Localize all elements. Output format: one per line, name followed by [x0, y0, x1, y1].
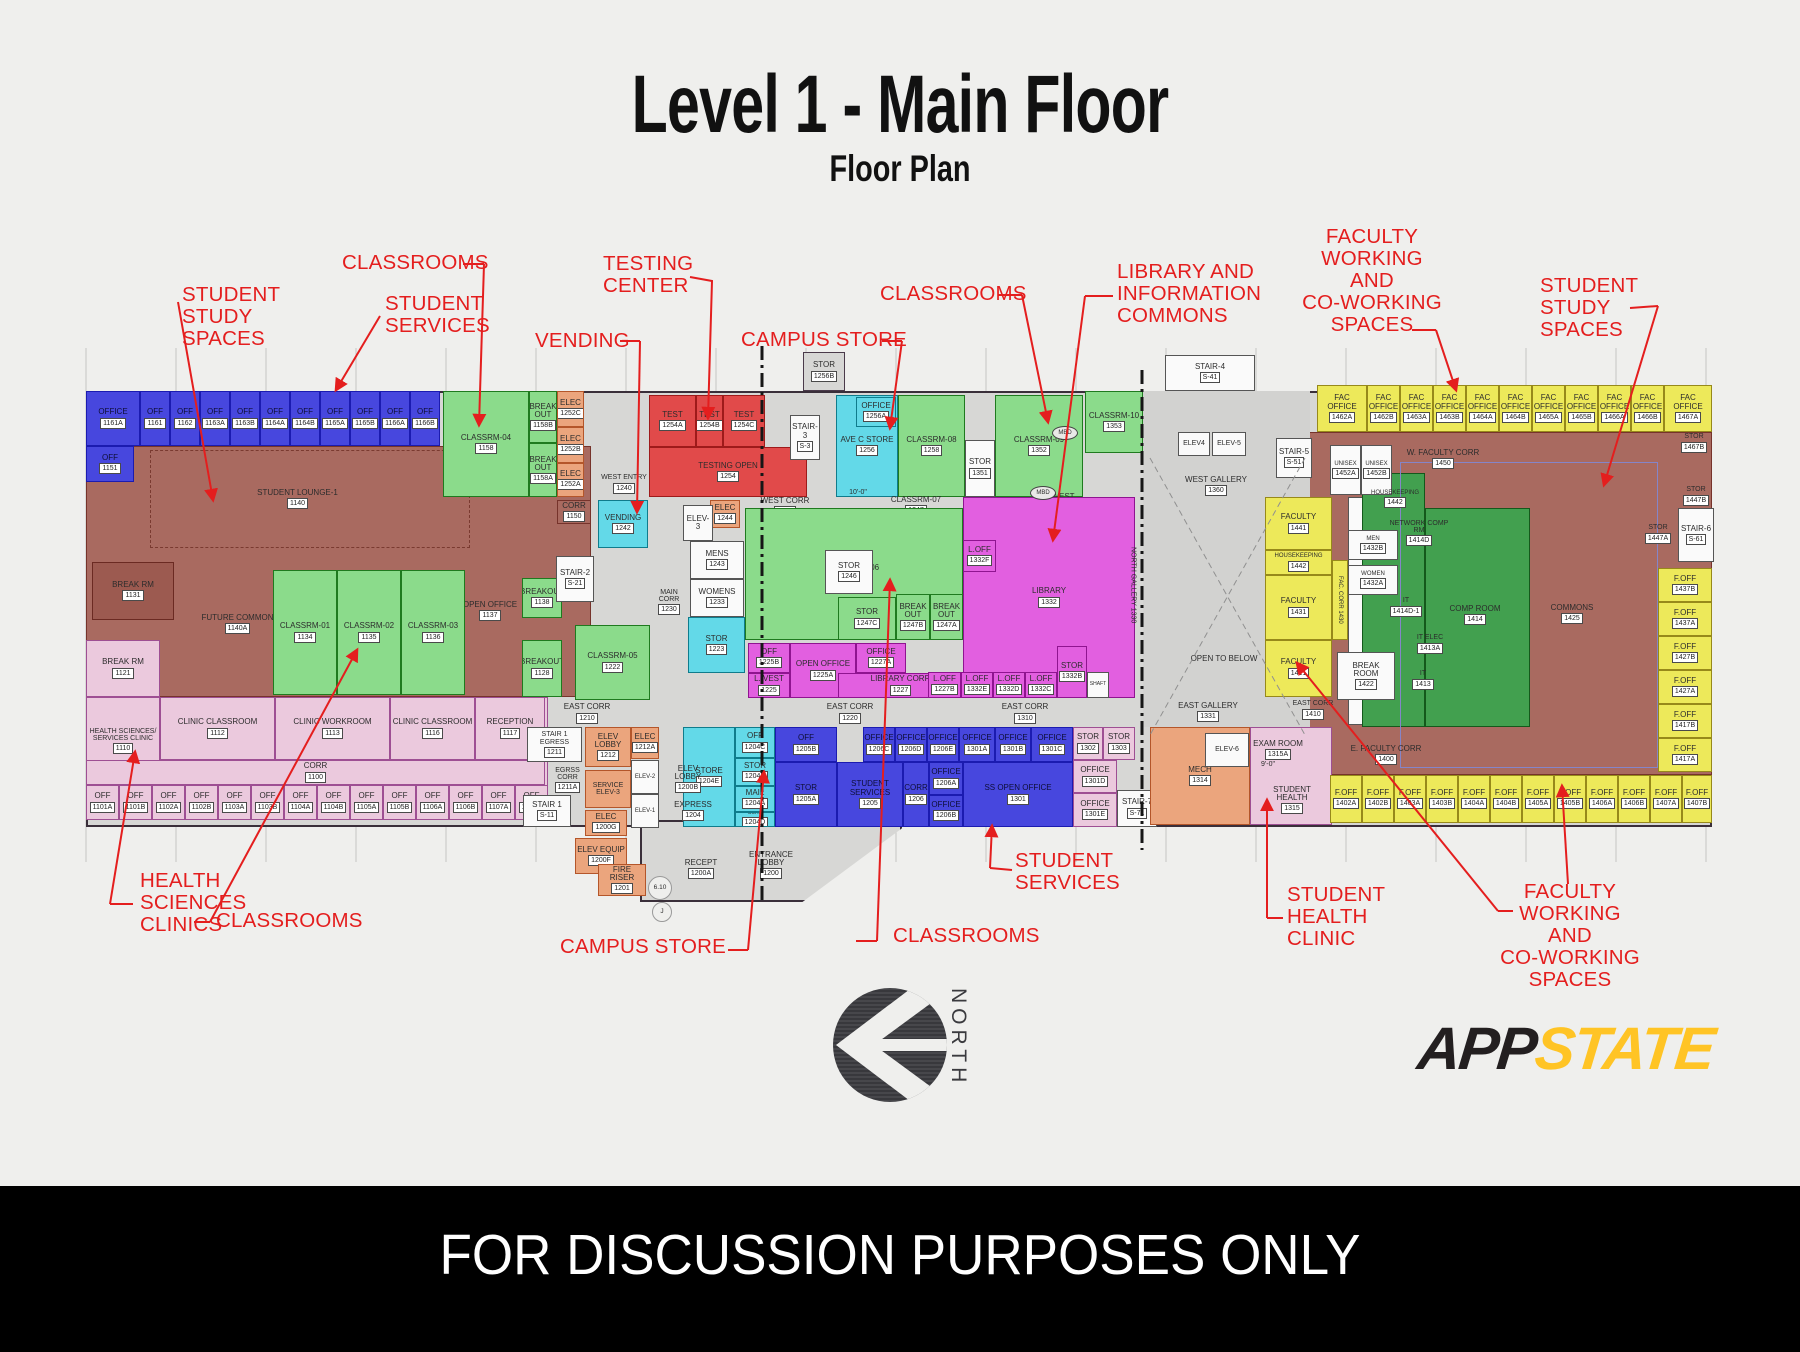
annotation-line: HEALTH — [1287, 906, 1385, 928]
annotation-line: STUDENT — [1540, 275, 1638, 297]
annotation-line: WORKING — [1302, 248, 1442, 270]
annotation-line: FACULTY — [1500, 881, 1640, 903]
annotation-line: SPACES — [182, 328, 280, 350]
annotation-line: SPACES — [1500, 969, 1640, 991]
floor-plan-page: Level 1 - Main Floor Floor Plan OFFICE11… — [0, 0, 1800, 1352]
annotation-line: SPACES — [1540, 319, 1638, 341]
annotation-line: CAMPUS STORE — [741, 329, 907, 351]
annotation-line: HEALTH — [140, 870, 246, 892]
annotation-line: STUDENT — [385, 293, 490, 315]
annotation-line: LIBRARY AND — [1117, 261, 1261, 283]
annotation-student-services: STUDENTSERVICES — [385, 293, 490, 337]
annotation-line: SPACES — [1302, 314, 1442, 336]
annotation-line: AND — [1302, 270, 1442, 292]
annotation-classrooms: CLASSROOMS — [342, 252, 489, 274]
annotation-classrooms: CLASSROOMS — [216, 910, 363, 932]
annotation-line: CLASSROOMS — [342, 252, 489, 274]
annotation-line: SERVICES — [385, 315, 490, 337]
annotation-line: CLASSROOMS — [893, 925, 1040, 947]
annotation-line: CLASSROOMS — [880, 283, 1027, 305]
annotation-campusstore: CAMPUS STORE — [741, 329, 907, 351]
annotation-libraryand-information-commons: LIBRARY ANDINFORMATIONCOMMONS — [1117, 261, 1261, 327]
annotation-line: CLINIC — [1287, 928, 1385, 950]
annotation-line: CLASSROOMS — [216, 910, 363, 932]
annotation-faculty-working-and-co-working-spaces: FACULTYWORKINGANDCO-WORKINGSPACES — [1302, 226, 1442, 336]
annotation-student-health-clinic: STUDENTHEALTHCLINIC — [1287, 884, 1385, 950]
annotation-line: CENTER — [603, 275, 693, 297]
annotation-classrooms: CLASSROOMS — [893, 925, 1040, 947]
annotation-line: STUDY — [1540, 297, 1638, 319]
annotation-student-study-spaces: STUDENTSTUDYSPACES — [182, 284, 280, 350]
annotation-line: COMMONS — [1117, 305, 1261, 327]
annotation-line: TESTING — [603, 253, 693, 275]
annotation-campusstore: CAMPUS STORE — [560, 936, 726, 958]
annotation-line: AND — [1500, 925, 1640, 947]
annotation-line: STUDENT — [1287, 884, 1385, 906]
annotation-line: STUDENT — [182, 284, 280, 306]
annotation-testing-center: TESTINGCENTER — [603, 253, 693, 297]
annotation-vending: VENDING — [535, 330, 630, 352]
annotation-student-services: STUDENTSERVICES — [1015, 850, 1120, 894]
annotation-line: SERVICES — [1015, 872, 1120, 894]
annotation-line: WORKING — [1500, 903, 1640, 925]
annotation-line: VENDING — [535, 330, 630, 352]
annotation-line: CAMPUS STORE — [560, 936, 726, 958]
annotation-line: STUDENT — [1015, 850, 1120, 872]
annotation-line: FACULTY — [1302, 226, 1442, 248]
annotation-line: INFORMATION — [1117, 283, 1261, 305]
annotation-faculty-working-and-co-working-spaces: FACULTYWORKINGANDCO-WORKINGSPACES — [1500, 881, 1640, 991]
annotation-line: CO-WORKING — [1500, 947, 1640, 969]
annotation-line: CO-WORKING — [1302, 292, 1442, 314]
annotation-student-study-spaces: STUDENTSTUDYSPACES — [1540, 275, 1638, 341]
floor-plan: OFFICE1161AOFF1161OFF1162OFF1163AOFF1163… — [0, 0, 1800, 1352]
annotation-line: STUDY — [182, 306, 280, 328]
annotations-layer: STUDENTSTUDYSPACESCLASSROOMSSTUDENTSERVI… — [0, 0, 1800, 1352]
annotation-classrooms: CLASSROOMS — [880, 283, 1027, 305]
